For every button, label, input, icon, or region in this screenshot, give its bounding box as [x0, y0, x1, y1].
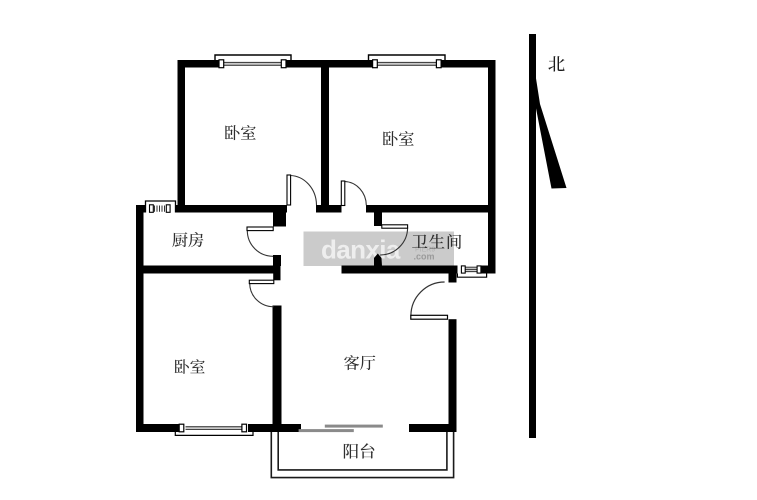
- svg-text:.com: .com: [414, 252, 435, 262]
- svg-text:danxia: danxia: [321, 235, 401, 265]
